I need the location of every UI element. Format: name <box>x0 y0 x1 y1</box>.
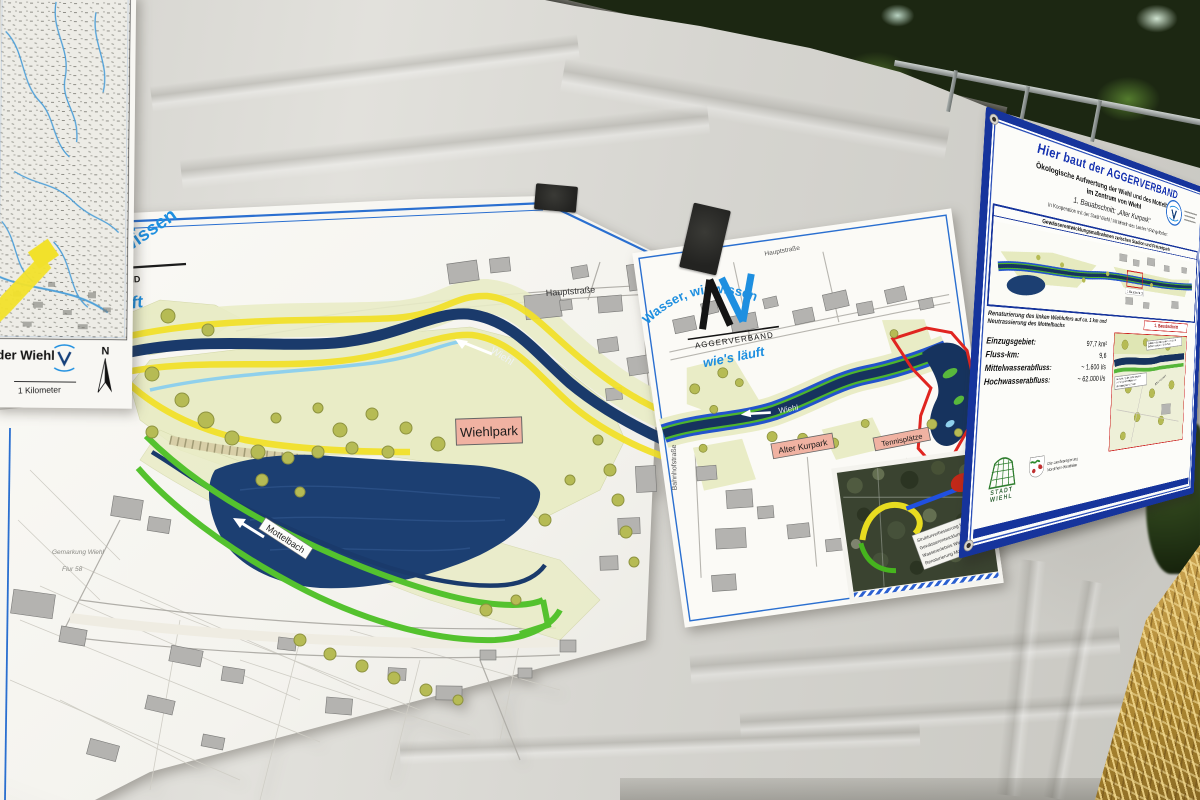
stat-row: Fluss-km: 9,6 <box>985 349 1106 359</box>
stat-value: 9,6 <box>1099 351 1107 359</box>
stat-label: Einzugsgebiet: <box>986 336 1036 347</box>
stat-row: Mittelwasserabfluss: ~ 1.600 l/s <box>984 363 1106 373</box>
detail-plan: Natürliche Gestaltung des Ufers durch Er… <box>1109 332 1187 451</box>
nrw-label: Die Landesregierung Nordrhein-Westfalen <box>1047 457 1078 474</box>
nrw-coat-of-arms-icon <box>1028 455 1045 480</box>
stat-value: 97,7 km² <box>1086 339 1107 348</box>
stat-row: Einzugsgebiet: 97,7 km² <box>986 336 1107 349</box>
construction-banner: Hier baut der AGGERVERBAND Ökologische A… <box>959 106 1200 559</box>
grommet-icon <box>989 112 999 126</box>
section-label: 1. Bauabschnitt <box>1144 320 1188 332</box>
stat-value: ~ 1.600 l/s <box>1081 363 1106 372</box>
project-stats: Einzugsgebiet: 97,7 km² Fluss-km: 9,6 Mi… <box>983 336 1107 391</box>
grommet-icon <box>963 539 973 553</box>
street-left-label: Bahnhofstraße <box>671 444 679 490</box>
stat-row: Hochwasserabfluss: ~ 62.000 l/s <box>984 374 1106 387</box>
stat-label: Fluss-km: <box>985 349 1019 359</box>
stat-value: ~ 62.000 l/s <box>1077 374 1105 383</box>
outdoor-info-board-photo: Hauptstraße Wiehl Wiehlpark Mottelbach G… <box>0 0 1200 800</box>
stat-label: Mittelwasserabfluss: <box>984 363 1051 373</box>
stat-label: Hochwasserabfluss: <box>984 375 1051 386</box>
tape-piece <box>534 183 578 213</box>
